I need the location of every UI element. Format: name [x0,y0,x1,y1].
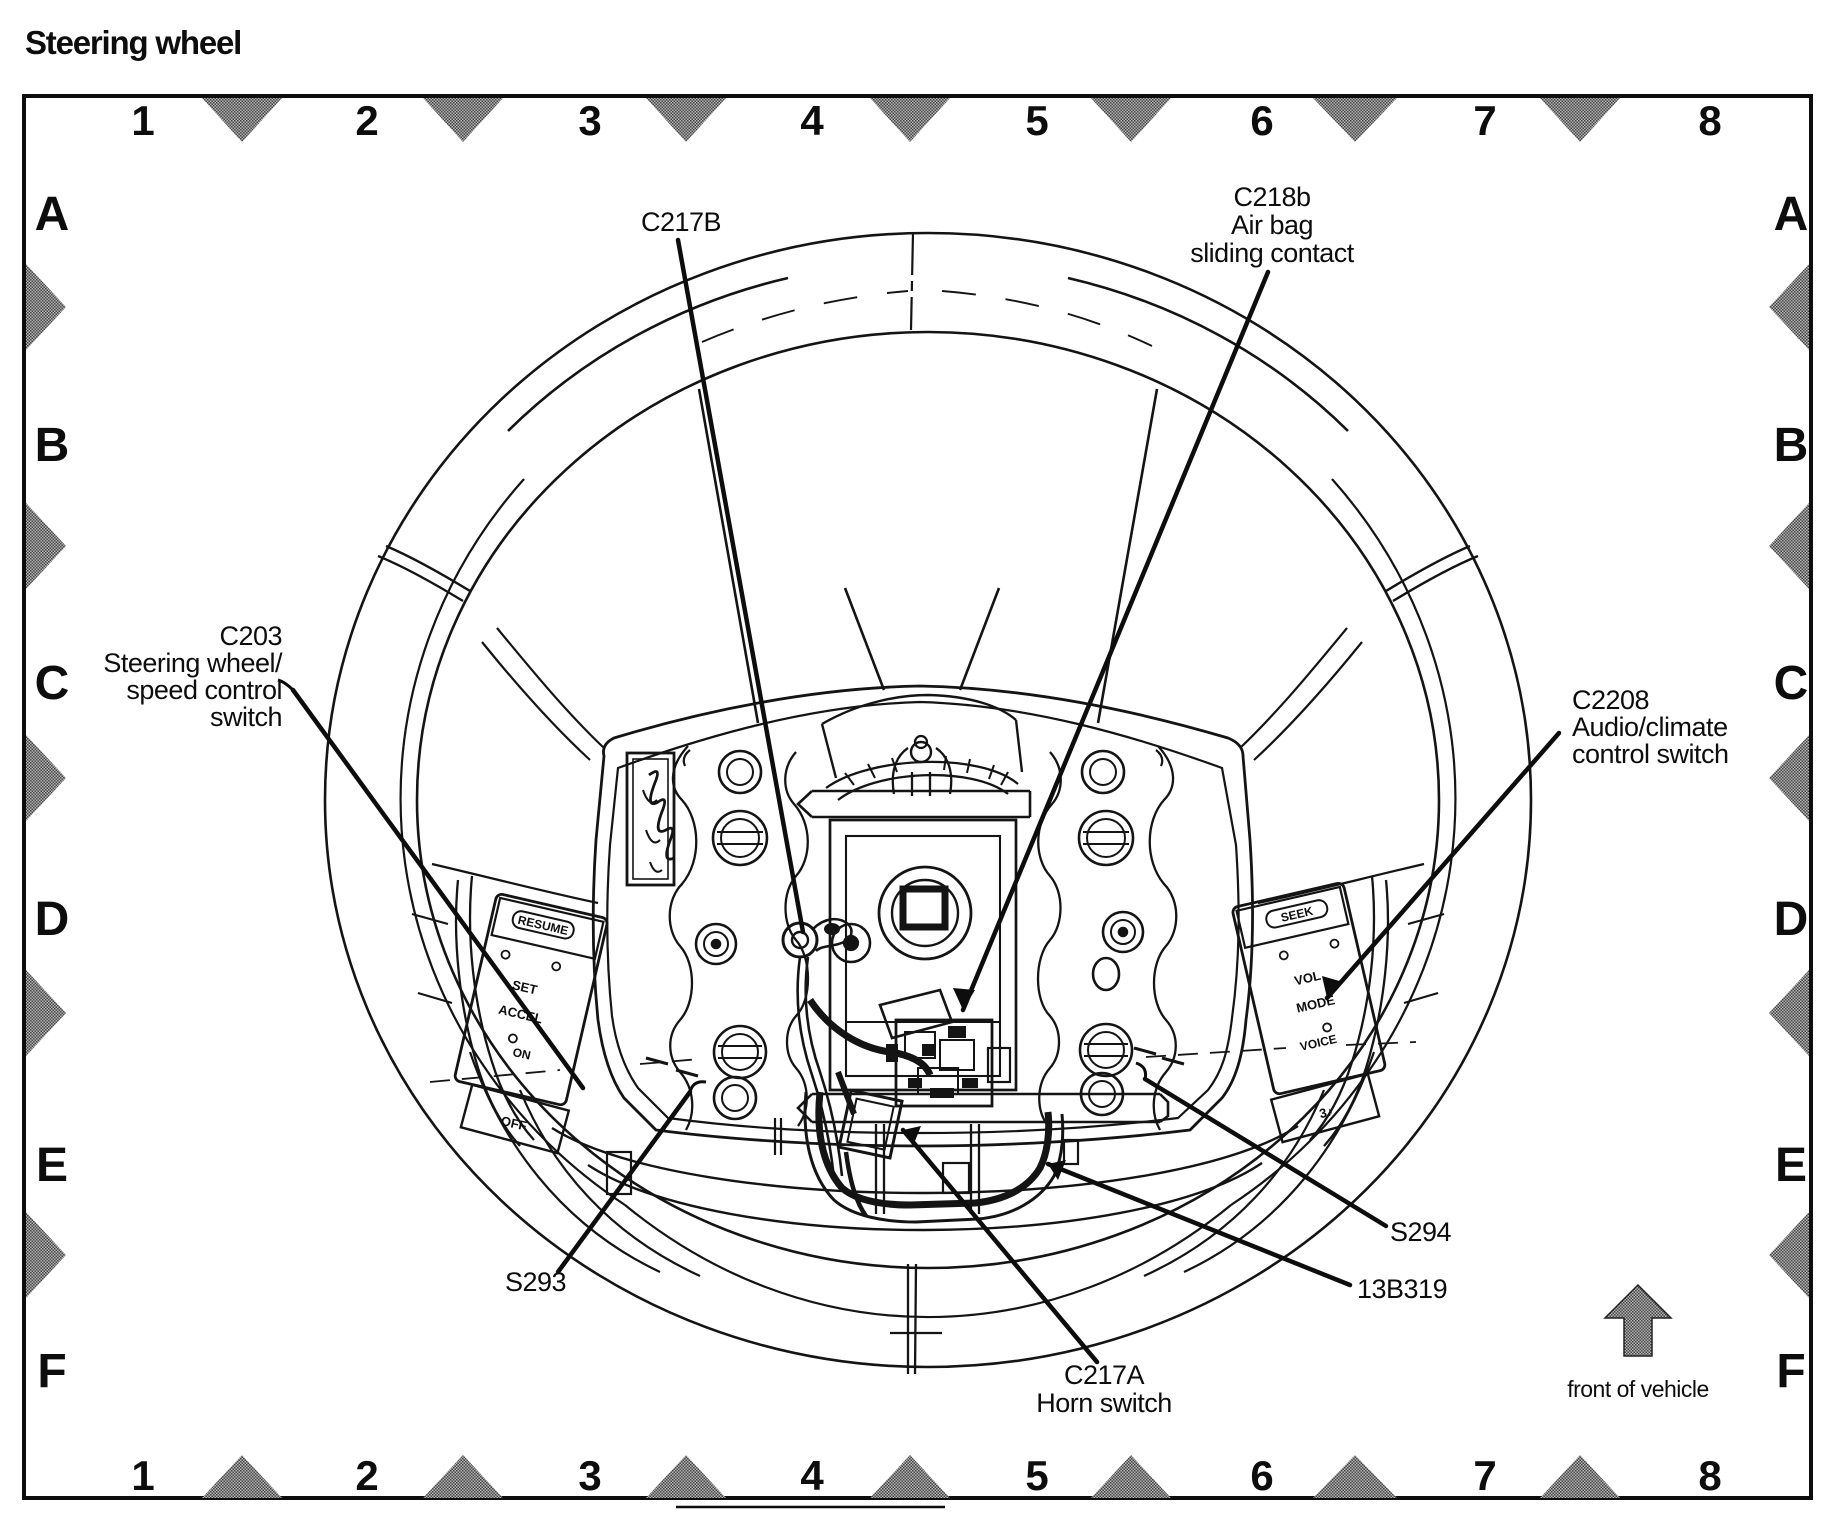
svg-text:3: 3 [578,1452,601,1499]
svg-text:C203: C203 [219,621,282,651]
svg-text:S294: S294 [1390,1217,1452,1247]
svg-text:8: 8 [1698,1452,1721,1499]
svg-text:3♪: 3♪ [1318,1103,1335,1121]
svg-text:F: F [37,1345,66,1398]
svg-text:A: A [1774,188,1809,241]
svg-text:Air bag: Air bag [1231,210,1313,240]
svg-text:E: E [1775,1139,1807,1192]
svg-text:switch: switch [210,702,282,732]
svg-text:Steering wheel/: Steering wheel/ [103,648,283,678]
svg-text:6: 6 [1250,97,1273,144]
svg-text:A: A [35,188,70,241]
svg-text:5: 5 [1025,97,1048,144]
svg-text:4: 4 [800,1452,824,1499]
svg-text:B: B [1774,419,1809,472]
svg-text:1: 1 [131,1452,154,1499]
svg-text:control switch: control switch [1572,739,1729,769]
svg-text:VOICE: VOICE [1299,1032,1339,1054]
svg-text:D: D [1774,893,1809,946]
svg-text:E: E [36,1139,68,1192]
svg-text:1: 1 [131,97,154,144]
svg-text:6: 6 [1250,1452,1273,1499]
svg-text:C2208: C2208 [1572,685,1649,715]
svg-text:4: 4 [800,97,824,144]
svg-text:C217B: C217B [641,207,721,237]
svg-text:2: 2 [355,97,378,144]
svg-text:sliding contact: sliding contact [1190,238,1355,268]
svg-text:B: B [35,419,70,472]
svg-text:Horn switch: Horn switch [1036,1388,1172,1418]
svg-text:13B319: 13B319 [1357,1274,1447,1304]
svg-text:3: 3 [578,97,601,144]
svg-text:C: C [1774,657,1809,710]
svg-text:C218b: C218b [1233,182,1310,212]
svg-text:7: 7 [1473,1452,1496,1499]
svg-text:VOL: VOL [1293,968,1322,989]
svg-text:speed control: speed control [126,675,282,705]
svg-text:ON: ON [511,1045,532,1063]
svg-text:C: C [35,657,70,710]
svg-text:front of vehicle: front of vehicle [1567,1376,1709,1402]
svg-text:C217A: C217A [1064,1360,1145,1390]
svg-text:7: 7 [1473,97,1496,144]
svg-text:8: 8 [1698,97,1721,144]
svg-text:F: F [1776,1345,1805,1398]
svg-text:D: D [35,893,70,946]
svg-text:2: 2 [355,1452,378,1499]
svg-text:Steering wheel: Steering wheel [25,24,241,61]
svg-text:Audio/climate: Audio/climate [1572,712,1728,742]
svg-text:5: 5 [1025,1452,1048,1499]
